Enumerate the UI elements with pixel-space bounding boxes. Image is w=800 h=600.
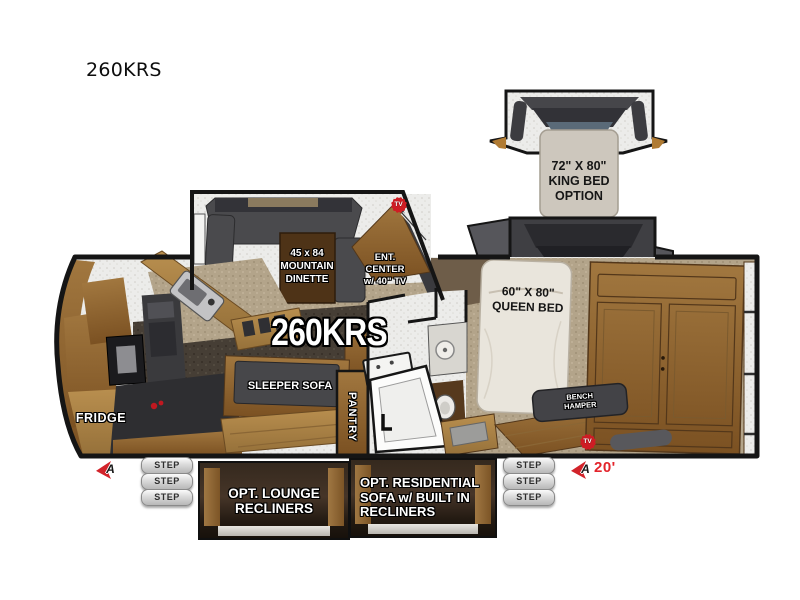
dinette-label: 45 x 84 MOUNTAIN DINETTE [256,247,358,286]
step-right-1: STEP [503,457,555,474]
awning-length-label: 20' [594,460,616,477]
step-right-3: STEP [503,489,555,506]
floorplan-image: 260KRS 260KRS 45 x 84 MOUNTAIN DINETTE E… [0,0,800,600]
pantry-label: PANTRY [346,379,358,455]
tv-icon-bedroom: TV [579,433,596,450]
option-card-residential: OPT. RESIDENTIAL SOFA w/ BUILT IN RECLIN… [349,458,497,538]
awning-marker-left-icon: A [96,461,118,479]
model-label: 260KRS [249,314,409,352]
queen-bed-slide [468,218,673,257]
option-card-lounge: OPT. LOUNGE RECLINERS [198,461,350,540]
page-title: 260KRS [86,60,162,81]
wardrobe [586,262,745,454]
ent-center-label: ENT. CENTER w/ 40" TV [346,252,424,288]
sofa-armrest [328,468,344,527]
step-right-2: STEP [503,473,555,490]
step-left-3: STEP [141,489,193,506]
king-bed-option-label: 72" X 80" KING BED OPTION [540,130,618,217]
sofa-armrest [475,465,491,524]
sofa-armrest [204,468,220,527]
sleeper-sofa-label: SLEEPER SOFA [229,380,351,392]
step-left-2: STEP [141,473,193,490]
fridge-label: FRIDGE [60,412,142,426]
step-left-1: STEP [141,457,193,474]
awning-marker-right-icon: A [571,461,593,479]
queen-bed-label: 60" X 80" QUEEN BED [486,284,571,316]
tv-icon-living: TV [390,196,407,213]
